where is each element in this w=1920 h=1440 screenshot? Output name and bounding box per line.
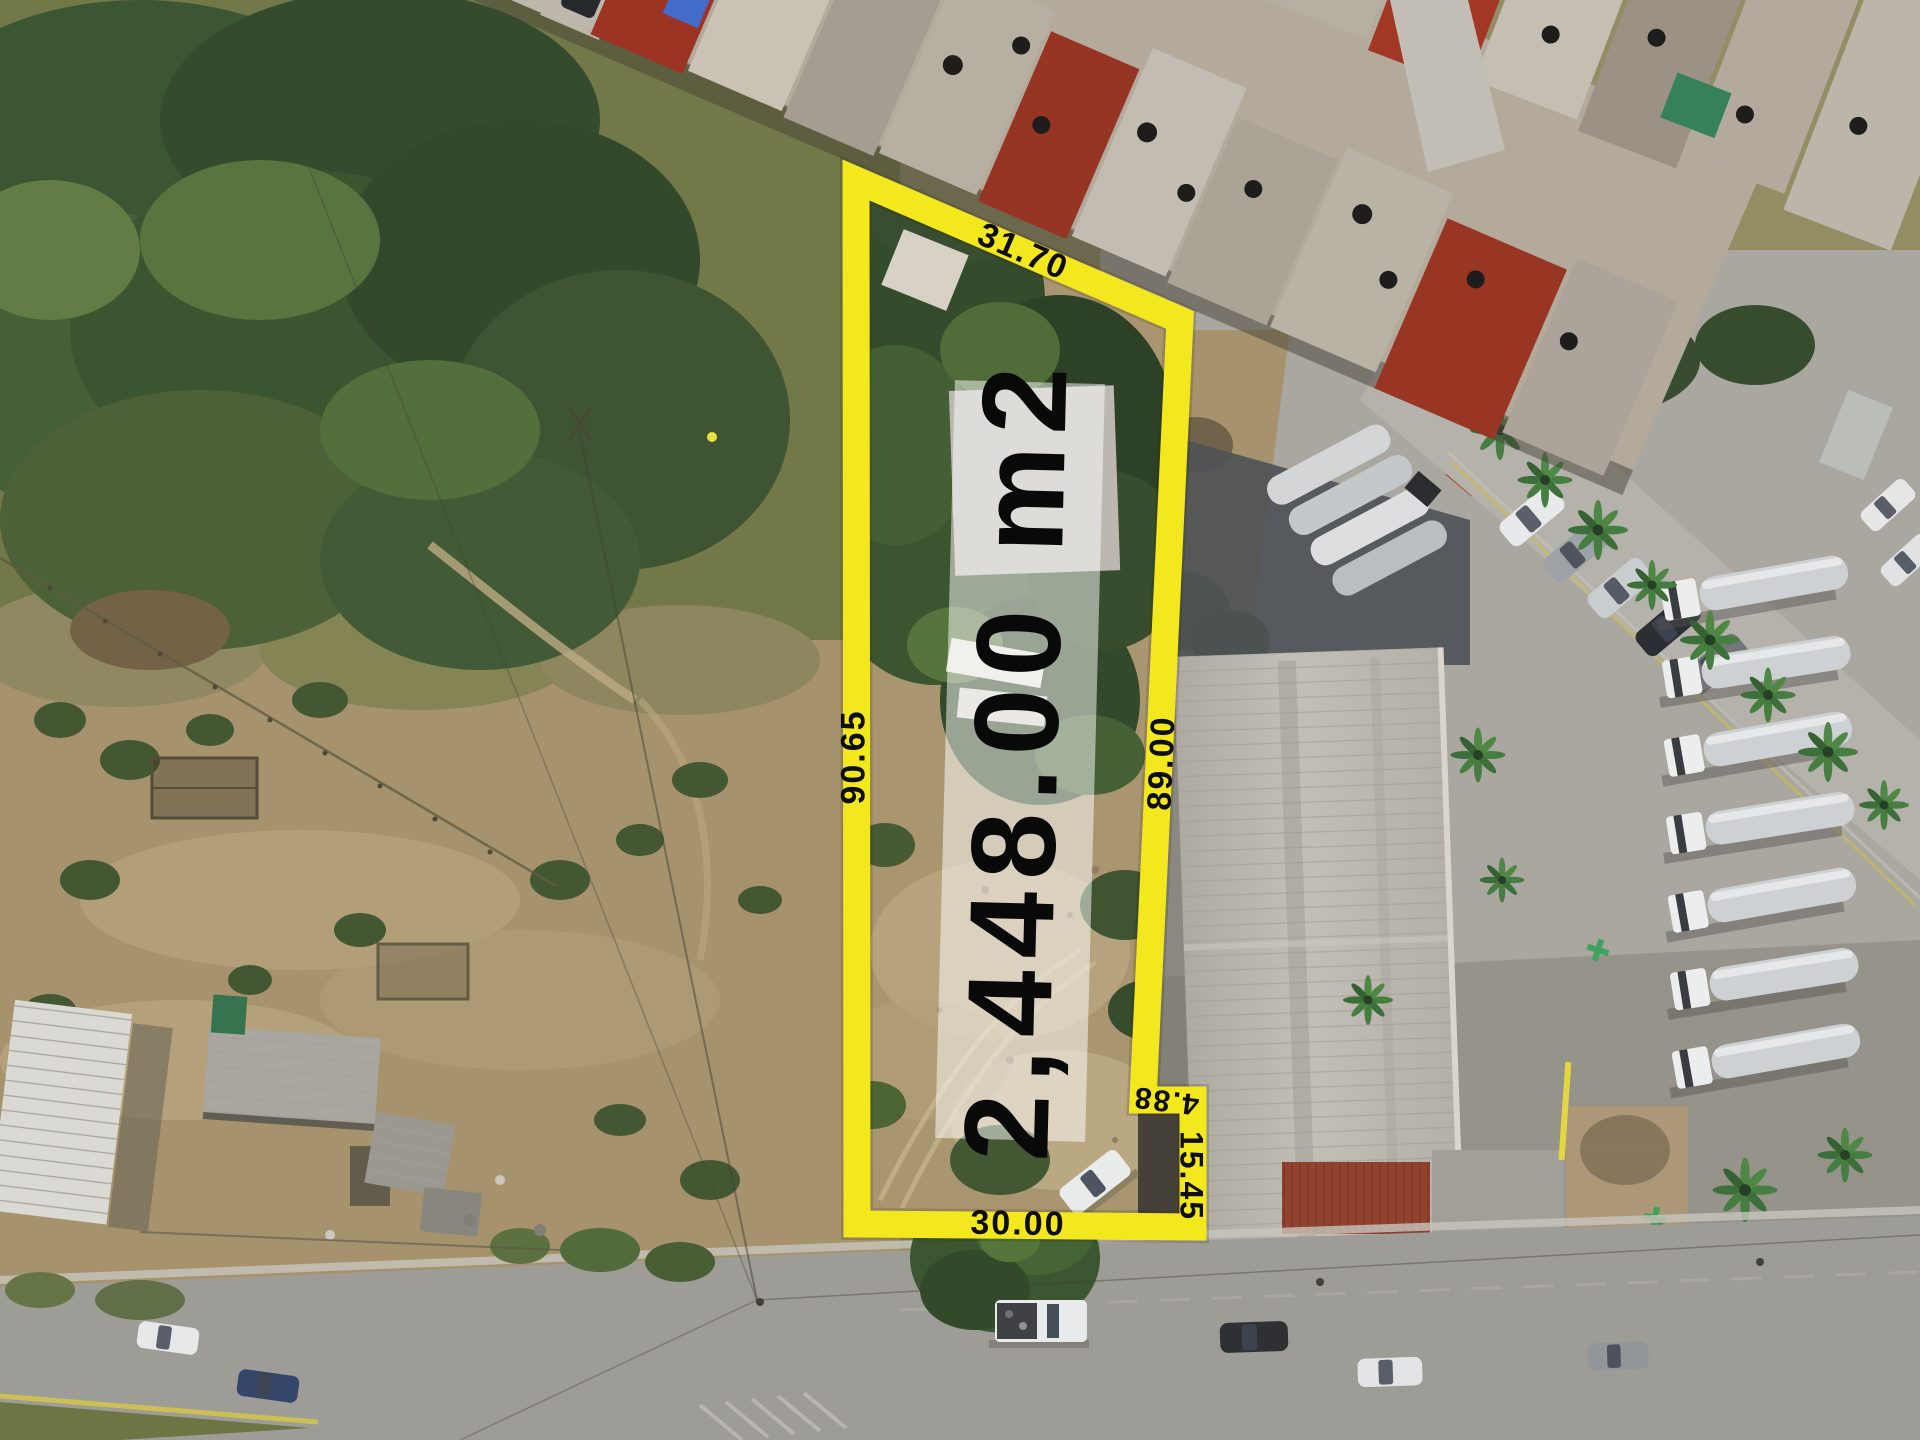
aerial-lot-photo: 2,448.00 m2 31.70 90.65 89.00 4.88 15.45… <box>0 0 1920 1440</box>
area-highlight-band <box>935 380 1105 1142</box>
aerial-photo-background <box>0 0 1920 1440</box>
